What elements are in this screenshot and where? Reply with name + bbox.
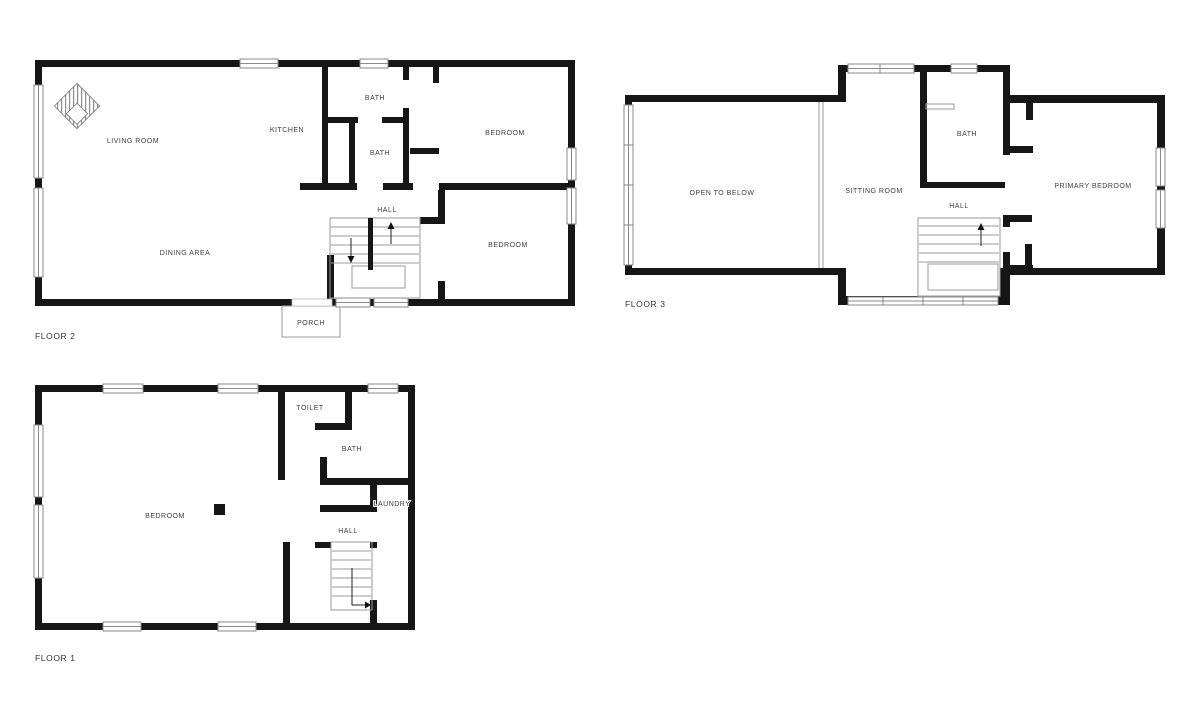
window: [567, 148, 576, 180]
floor-1-stairs: [331, 542, 372, 610]
room-label-porch: PORCH: [297, 320, 325, 327]
room-label-kitchen: KITCHEN: [270, 127, 304, 134]
window: [848, 64, 914, 73]
stair-landing-outline: [352, 266, 405, 288]
room-label-hall-f2: HALL: [377, 207, 397, 214]
structural-post: [214, 504, 225, 515]
wall-toilet: [315, 423, 352, 430]
stairs-up-arrow-icon: [388, 222, 395, 229]
window: [336, 298, 370, 307]
wall: [1003, 265, 1033, 272]
floor-1-walls: [35, 385, 415, 630]
room-label-bedroom-lower: BEDROOM: [488, 242, 528, 249]
window: [951, 64, 977, 73]
floor-3-stairs: [918, 218, 1000, 296]
window: [34, 188, 43, 277]
floor-2-stairs: [330, 218, 420, 298]
room-label-bath-lower: BATH: [370, 150, 390, 157]
wall-stair-side: [370, 600, 377, 630]
bath-vanity-outline: [926, 104, 954, 109]
wall-bath: [320, 478, 415, 485]
door-opening: [403, 80, 409, 108]
floor-plan-drawing: LIVING ROOM KITCHEN BATH BATH BEDROOM HA…: [0, 0, 1200, 703]
wall: [1010, 268, 1165, 275]
floor-2-label: FLOOR 2: [35, 331, 76, 341]
floor-plan-page: LIVING ROOM KITCHEN BATH BATH BEDROOM HA…: [0, 0, 1200, 703]
room-label-bath-upper: BATH: [365, 95, 385, 102]
wall-closet: [1026, 95, 1033, 120]
wall-bath: [1003, 65, 1010, 155]
stair-divider-wall: [368, 218, 373, 270]
open-to-below-divider: [819, 102, 823, 268]
room-label-bedroom-upper: BEDROOM: [485, 130, 525, 137]
wall: [439, 183, 575, 190]
floor-3-label: FLOOR 3: [625, 299, 666, 309]
window: [103, 384, 143, 393]
wall: [322, 117, 358, 123]
fireplace-icon: [54, 83, 99, 128]
window: [103, 622, 141, 631]
window: [624, 105, 633, 265]
window: [368, 384, 398, 393]
wall-bath: [920, 65, 927, 188]
room-label-laundry: LAUNDRY: [374, 501, 411, 508]
room-label-bedroom-f1: BEDROOM: [145, 513, 185, 520]
wall: [300, 183, 357, 190]
room-label-hall-f3: HALL: [949, 203, 969, 210]
floor-1-label: FLOOR 1: [35, 653, 76, 663]
room-label-bath-f3: BATH: [957, 131, 977, 138]
window: [218, 384, 258, 393]
wall: [420, 217, 445, 224]
wall: [625, 95, 846, 102]
wall-bath: [920, 182, 1005, 188]
window: [360, 59, 388, 68]
window: [218, 622, 256, 631]
room-label-toilet: TOILET: [296, 405, 324, 412]
floor-3-plan: OPEN TO BELOW SITTING ROOM BATH HALL PRI…: [624, 64, 1165, 309]
floor-2-plan: LIVING ROOM KITCHEN BATH BATH BEDROOM HA…: [34, 59, 576, 341]
room-label-dining-area: DINING AREA: [160, 250, 211, 257]
wall: [1003, 252, 1010, 305]
wall: [278, 392, 285, 480]
wall-closet: [433, 67, 439, 83]
window: [240, 59, 278, 68]
window: [567, 188, 576, 224]
floor-1-plan: TOILET BATH BEDROOM LAUNDRY HALL FLOOR 1: [34, 384, 415, 663]
wall: [383, 183, 413, 190]
window: [34, 85, 43, 178]
stair-treads: [919, 226, 999, 262]
wall-stair-side: [283, 542, 290, 630]
wall-shower: [320, 457, 327, 485]
wall-toilet: [345, 392, 352, 423]
wall-door-pier: [438, 281, 445, 306]
wall-door-pier: [315, 542, 331, 548]
window: [374, 298, 408, 307]
window: [848, 297, 998, 305]
room-label-hall-f1: HALL: [338, 528, 358, 535]
wall-door-pier: [1003, 215, 1010, 227]
window: [1156, 190, 1165, 228]
wall: [35, 60, 575, 67]
wall: [349, 123, 355, 183]
wall-closet: [1003, 146, 1033, 153]
stair-outline: [330, 218, 420, 298]
stair-treads: [331, 227, 419, 263]
wall: [320, 505, 377, 512]
wall-kitchen-divider: [322, 67, 328, 183]
room-label-sitting-room: SITTING ROOM: [845, 188, 902, 195]
room-label-living-room: LIVING ROOM: [107, 138, 159, 145]
stair-outline: [918, 218, 1000, 296]
entry-door-opening: [292, 299, 332, 306]
wall-closet: [410, 148, 439, 154]
floor-2-walls: [35, 60, 575, 306]
wall: [625, 268, 846, 275]
room-label-primary-bedroom: PRIMARY BEDROOM: [1054, 183, 1131, 190]
room-label-open-to-below: OPEN TO BELOW: [690, 190, 755, 197]
room-label-bath-f1: BATH: [342, 446, 362, 453]
window: [34, 425, 43, 497]
stair-landing-outline: [928, 264, 998, 290]
window: [1156, 148, 1165, 186]
stairs-down-arrow-icon: [348, 256, 355, 263]
window: [34, 505, 43, 578]
wall-door-pier: [370, 542, 377, 548]
